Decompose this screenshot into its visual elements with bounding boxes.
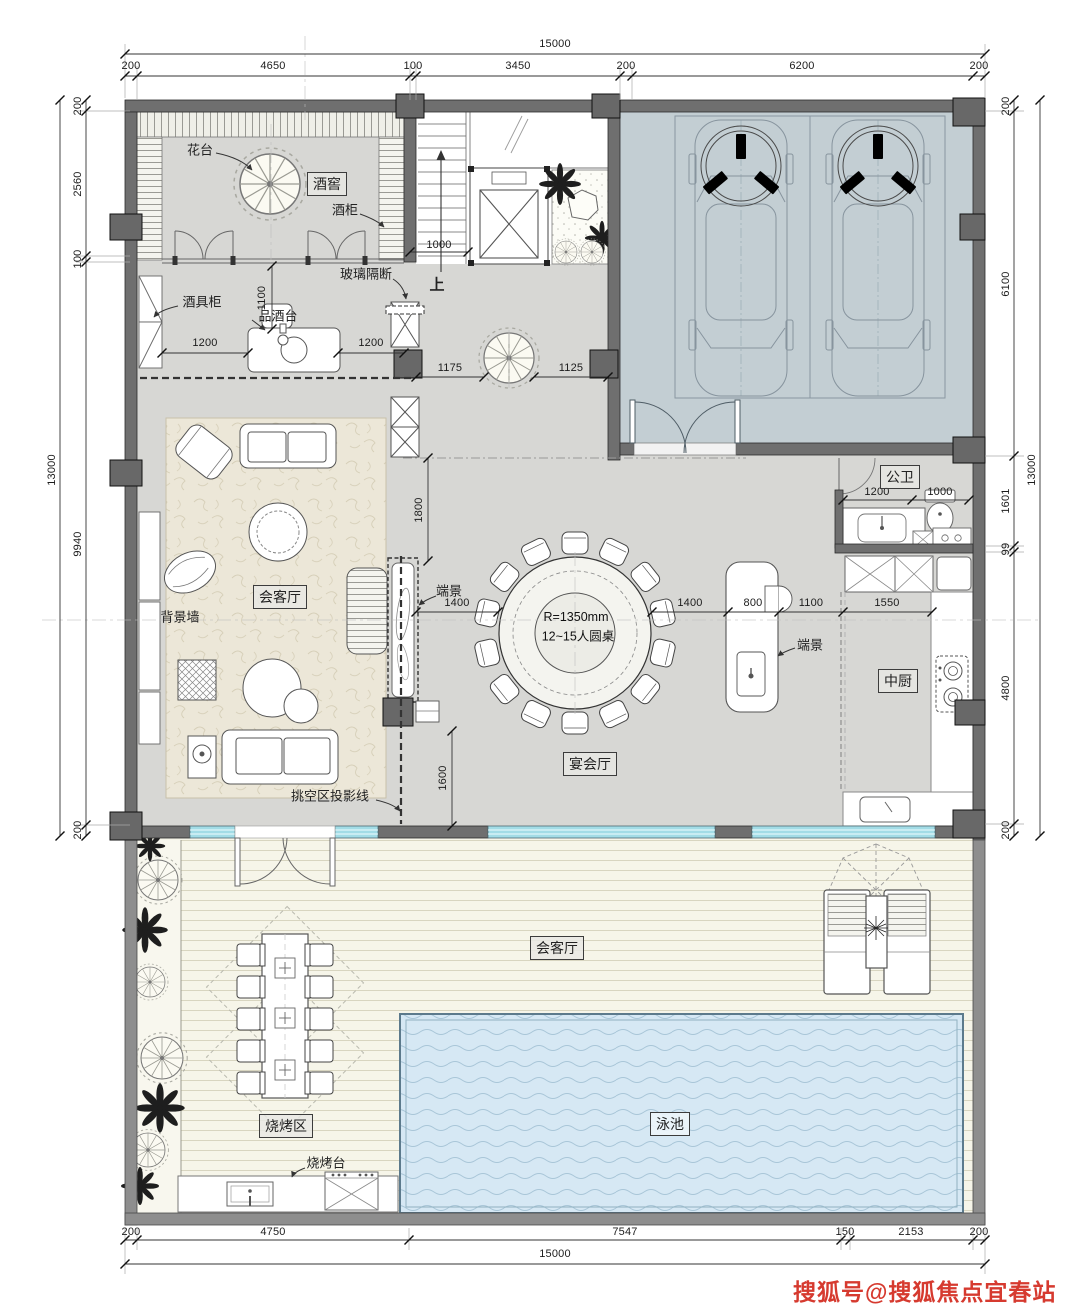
dim-bottom-2: 7547 (612, 1226, 637, 1238)
annotation-bbq-counter: 烧烤台 (306, 1153, 345, 1172)
bbq-counter-unit (178, 1172, 398, 1212)
dining-table-radius: R=1350mm (544, 610, 609, 624)
dim-right-0: 200 (1000, 97, 1012, 116)
dim-top-6: 200 (970, 60, 989, 72)
dim-right-2: 1601 (1000, 488, 1012, 513)
dim-bottom-1: 4750 (260, 1226, 285, 1238)
dim-tasting-left: 1200 (192, 337, 217, 349)
dim-left-4: 200 (72, 821, 84, 840)
dim-top-4: 200 (617, 60, 636, 72)
dim-gallery: 1800 (413, 497, 425, 522)
dim-bath-wc: 1000 (927, 486, 952, 498)
annotation-flower-stand: 花台 (187, 140, 213, 159)
floor-plan-drawing (0, 0, 1080, 1308)
annotation-void-projection: 挑空区投影线 (291, 786, 369, 805)
dining-table-capacity: 12~15人圆桌 (542, 626, 615, 645)
elevator (468, 166, 550, 266)
annotation-barware-cabinet: 酒具柜 (182, 292, 221, 311)
annotation-stairs-up: 上 (429, 274, 444, 295)
dim-top-3: 3450 (505, 60, 530, 72)
dim-island-gap: 1100 (799, 597, 823, 609)
room-terrace-lounge: 会客厅 (530, 936, 584, 960)
dim-right-3: 99 (1000, 543, 1012, 556)
dim-bottom-0: 200 (122, 1226, 141, 1238)
dim-left-2: 100 (72, 250, 84, 269)
watermark: 搜狐号@搜狐焦点宜春站 (793, 1273, 1056, 1307)
dim-void-depth: 1600 (437, 765, 449, 790)
annotation-end-scene-living: 端景 (436, 581, 462, 600)
dim-stair-width: 1000 (426, 239, 451, 251)
dim-left-0: 200 (72, 97, 84, 116)
dim-table-right: 1400 (677, 597, 702, 609)
dim-top-1: 4650 (260, 60, 285, 72)
annotation-glass-partition: 玻璃隔断 (340, 264, 392, 283)
dim-bottom-4: 2153 (898, 1226, 923, 1238)
glass-partition-edge (386, 306, 424, 314)
dim-bottom-total: 15000 (539, 1248, 571, 1260)
room-bbq: 烧烤区 (259, 1114, 313, 1138)
dim-left-1: 2560 (72, 171, 84, 196)
dim-left-3: 9940 (72, 531, 84, 556)
garage-floor (620, 112, 973, 443)
dim-top-0: 200 (122, 60, 141, 72)
annotation-wine-cabinet: 酒柜 (332, 200, 358, 219)
room-kitchen: 中厨 (878, 669, 918, 693)
dim-right-total: 13000 (1026, 454, 1038, 486)
room-wine-cellar: 酒窖 (307, 172, 347, 196)
dim-right-5: 200 (1000, 821, 1012, 840)
end-scene-console (388, 558, 418, 702)
room-living: 会客厅 (253, 585, 307, 609)
dim-left-total: 13000 (46, 454, 58, 486)
annotation-feature-wall: 背景墙 (160, 607, 199, 626)
barware-cabinet (139, 276, 162, 368)
feature-wall-cabinet (139, 512, 160, 744)
dim-island: 800 (744, 597, 763, 609)
dim-tasting-right: 1200 (358, 337, 383, 349)
floor-plan-page: 15000 200 4650 100 3450 200 6200 200 130… (0, 0, 1080, 1308)
dim-bottom-3: 150 (836, 1226, 855, 1238)
dim-bottom-5: 200 (970, 1226, 989, 1238)
dim-top-5: 6200 (789, 60, 814, 72)
console-side-unit (416, 701, 439, 722)
dim-top-2: 100 (404, 60, 423, 72)
dim-column-right: 1125 (559, 362, 583, 374)
dim-kitchen-width: 1550 (874, 597, 899, 609)
room-pool: 泳池 (650, 1112, 690, 1136)
room-bathroom: 公卫 (880, 465, 920, 489)
dim-right-1: 6100 (1000, 271, 1012, 296)
dim-top-total: 15000 (539, 38, 571, 50)
annotation-tasting-table: 品酒台 (258, 306, 297, 325)
dim-column-left: 1175 (438, 362, 462, 374)
annotation-end-scene-island: 端景 (797, 635, 823, 654)
dim-right-4: 4800 (1000, 675, 1012, 700)
room-banquet: 宴会厅 (563, 752, 617, 776)
